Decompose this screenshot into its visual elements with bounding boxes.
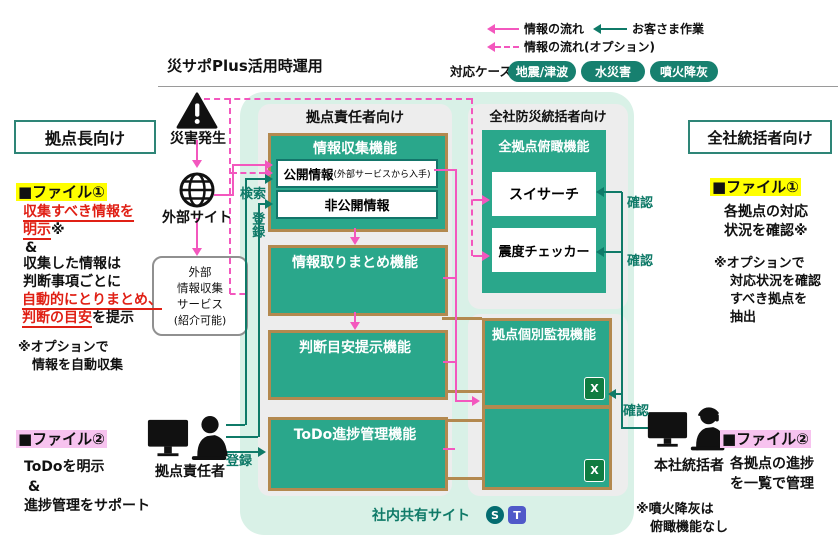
monitor-title: 拠点個別監視機能 [482, 324, 606, 343]
excel-file-icon: X [584, 459, 605, 482]
left-file2-line3: 進捗管理をサポート [24, 498, 150, 516]
sui-search-label: スイサーチ [509, 184, 579, 204]
bottom-note-line2: 俯瞰機能なし [650, 520, 728, 536]
left-file1-line4: 判断事項ごとに [23, 274, 121, 292]
flow-summary-to-judgment [354, 312, 356, 322]
right-file1-line1: 各拠点の対応 [724, 204, 808, 222]
left-file1-red-line4: 判断の目安を提示 [22, 310, 134, 328]
ext-service-line: サービス [154, 296, 246, 312]
left-file2-line1: ToDoを明示 [24, 459, 105, 477]
line-tail-text: を提示 [92, 310, 134, 326]
optional-flow-to-public [231, 172, 265, 174]
private-info-box: 非公開情報 [276, 190, 438, 219]
legend-info-flow-option-label: 情報の流れ(オプション) [524, 40, 655, 55]
red-underline-text: 明示 [23, 222, 51, 238]
legend-dashed-line [495, 46, 519, 48]
left-file1-amp: & [25, 240, 37, 258]
flow-site-elbow-h [214, 194, 234, 196]
red-underline-text: 自動的にとりまとめ、 [22, 292, 162, 308]
optional-flow-to-sui [473, 199, 482, 201]
search-label: 検索 [240, 187, 266, 203]
public-info-box: 公開情報(外部サービスから入手) [276, 159, 438, 188]
flow-collect-to-summary [354, 228, 356, 237]
left-file2-heading: ■ファイル② [16, 430, 107, 449]
right-file1-note1: ※オプションで [714, 256, 805, 272]
red-underline-text: 判断の目安 [22, 310, 92, 326]
hq-panel-header: 全社防災統括者向け [468, 110, 628, 126]
legend-dashed-arrow-icon [487, 42, 495, 52]
flow-rung-1 [434, 169, 455, 171]
flow-rung-4 [443, 448, 455, 450]
hq-audience-box: 全社統括者向け [688, 120, 832, 154]
confirm1-line [604, 191, 622, 193]
title-rule [158, 86, 838, 87]
optional-flow-service-stub [230, 293, 245, 295]
left-file1-heading-text: ■ファイル① [16, 183, 107, 201]
flow-site-to-public [232, 164, 265, 166]
right-file2-heading: ■ファイル② [720, 430, 811, 449]
judgment-title: 判断目安提示機能 [268, 337, 442, 357]
confirm2-label: 確認 [627, 254, 653, 270]
flow-disaster-arrow-icon [192, 160, 202, 168]
case-flood-badge: 水災害 [581, 61, 645, 82]
case-earthquake-tsunami-badge: 地震/津波 [508, 61, 576, 82]
teams-icon: T [508, 506, 526, 524]
flow-monitor-arrow-icon [472, 396, 480, 406]
left-file1-line3: 収集した情報は [23, 256, 121, 274]
optional-flow-to-shindo [473, 255, 482, 257]
flow-service-arrow-icon [192, 248, 202, 256]
right-file1-line2: 状況を確認※ [724, 223, 808, 241]
legend-customer-work-label: お客さま作業 [632, 22, 704, 37]
shindo-checker-box: 震度チェッカー [492, 228, 596, 272]
search-line-top [245, 178, 265, 180]
site-manager-panel-header: 拠点責任者向け [258, 110, 452, 128]
right-file2-line1: 各拠点の進捗 [730, 456, 814, 474]
ext-service-line: 外部 [154, 264, 246, 280]
ext-service-line: (紹介可能) [154, 312, 246, 328]
legend-pink-arrow-icon [487, 24, 495, 34]
left-file1-red-line1: 収集すべき情報を [23, 204, 134, 222]
overview-title: 全拠点俯瞰機能 [482, 136, 606, 155]
sharepoint-icon: S [486, 506, 504, 524]
flow-judgment-arrow-icon [350, 322, 360, 330]
public-info-label: 公開情報 [283, 164, 333, 183]
right-file1-note4: 抽出 [730, 310, 756, 326]
register-arrow-icon [265, 199, 273, 209]
left-file1-red-line3: 自動的にとりまとめ、 [22, 292, 162, 310]
shared-site-label: 社内共有サイト [372, 508, 470, 526]
page-title: 災サポPlus活用時運用 [167, 57, 323, 76]
left-file1-note1: ※オプションで [18, 340, 109, 356]
right-file1-note3: すべき拠点を [730, 292, 807, 308]
diagram-canvas: 情報の流れ お客さま作業 情報の流れ(オプション) 対応ケース： 地震/津波 水… [0, 0, 840, 560]
confirm1-arrow-icon [596, 187, 604, 197]
todo-title: ToDo進捗管理機能 [268, 424, 442, 444]
register-line-v [258, 203, 260, 437]
legend-teal-line [601, 28, 627, 30]
register-line-top [258, 203, 265, 205]
confirm3-arrow-icon [608, 389, 616, 399]
right-file2-heading-text: ■ファイル② [720, 430, 811, 448]
excel-file-icon: X [584, 377, 605, 400]
tan-flow-line-1 [442, 317, 482, 320]
left-file1-red-line2: 明示※ [23, 222, 65, 240]
sui-search-box: スイサーチ [492, 172, 596, 216]
confirm1-label: 確認 [627, 196, 653, 212]
right-file1-heading-text: ■ファイル① [710, 178, 801, 196]
summary-title: 情報取りまとめ機能 [268, 252, 442, 272]
right-file2-line2: を一覧で管理 [730, 476, 814, 494]
optional-flow-left-v [229, 98, 231, 294]
legend-teal-arrow-icon [593, 24, 601, 34]
right-file1-note2: 対応状況を確認 [730, 274, 821, 290]
register2-arrow-icon [258, 447, 266, 457]
site-manager-label: 拠点責任者 [144, 464, 236, 482]
confirm3-label: 確認 [623, 404, 649, 420]
optional-shindo-arrow-icon [482, 251, 490, 261]
confirm3-line [616, 393, 622, 395]
info-collect-title: 情報収集機能 [268, 138, 442, 158]
optional-flow-top [204, 98, 472, 100]
right-file1-heading: ■ファイル① [710, 178, 801, 197]
shindo-checker-label: 震度チェッカー [498, 241, 589, 260]
private-info-label: 非公開情報 [324, 195, 389, 214]
search-arrow-icon [265, 174, 273, 184]
flow-rung-3 [443, 361, 455, 363]
red-underline-text: 収集すべき情報を [23, 204, 134, 220]
flow-site-elbow-v [232, 164, 234, 196]
site-head-audience-box: 拠点長向け [14, 120, 156, 154]
confirm2-arrow-icon [596, 247, 604, 257]
optional-sui-arrow-icon [482, 195, 490, 205]
globe-icon [177, 170, 217, 210]
legend-info-flow-label: 情報の流れ [524, 22, 584, 37]
left-file1-heading: ■ファイル① [16, 183, 107, 202]
warning-triangle-icon [176, 92, 218, 130]
left-file2-heading-text: ■ファイル② [16, 430, 107, 448]
external-service-box: 外部 情報収集 サービス (紹介可能) [152, 256, 248, 336]
bottom-note-line1: ※噴火降灰は [636, 502, 714, 518]
left-file2-amp: & [28, 479, 40, 497]
external-site-label: 外部サイト [156, 210, 238, 228]
note-mark: ※ [51, 222, 65, 238]
confirm2-line [604, 251, 622, 253]
flow-rung-2 [443, 277, 455, 279]
site-manager-person-icon [146, 414, 232, 462]
register-label: 登録 [248, 212, 264, 238]
hq-manager-person-icon [646, 404, 730, 452]
flow-summary-arrow-icon [350, 237, 360, 245]
register2-label: 登録 [226, 454, 252, 470]
hq-manager-label: 本社統括者 [644, 458, 734, 476]
flow-collector-line [455, 169, 457, 402]
legend-pink-line [495, 28, 519, 30]
left-file1-note2: 情報を自動収集 [32, 358, 123, 374]
public-info-sub-label: (外部サービスから入手) [333, 167, 430, 180]
case-volcano-badge: 噴火降灰 [650, 61, 718, 82]
flow-to-monitor [455, 400, 472, 402]
search-line-v [245, 178, 247, 425]
disaster-label: 災害発生 [160, 131, 236, 149]
